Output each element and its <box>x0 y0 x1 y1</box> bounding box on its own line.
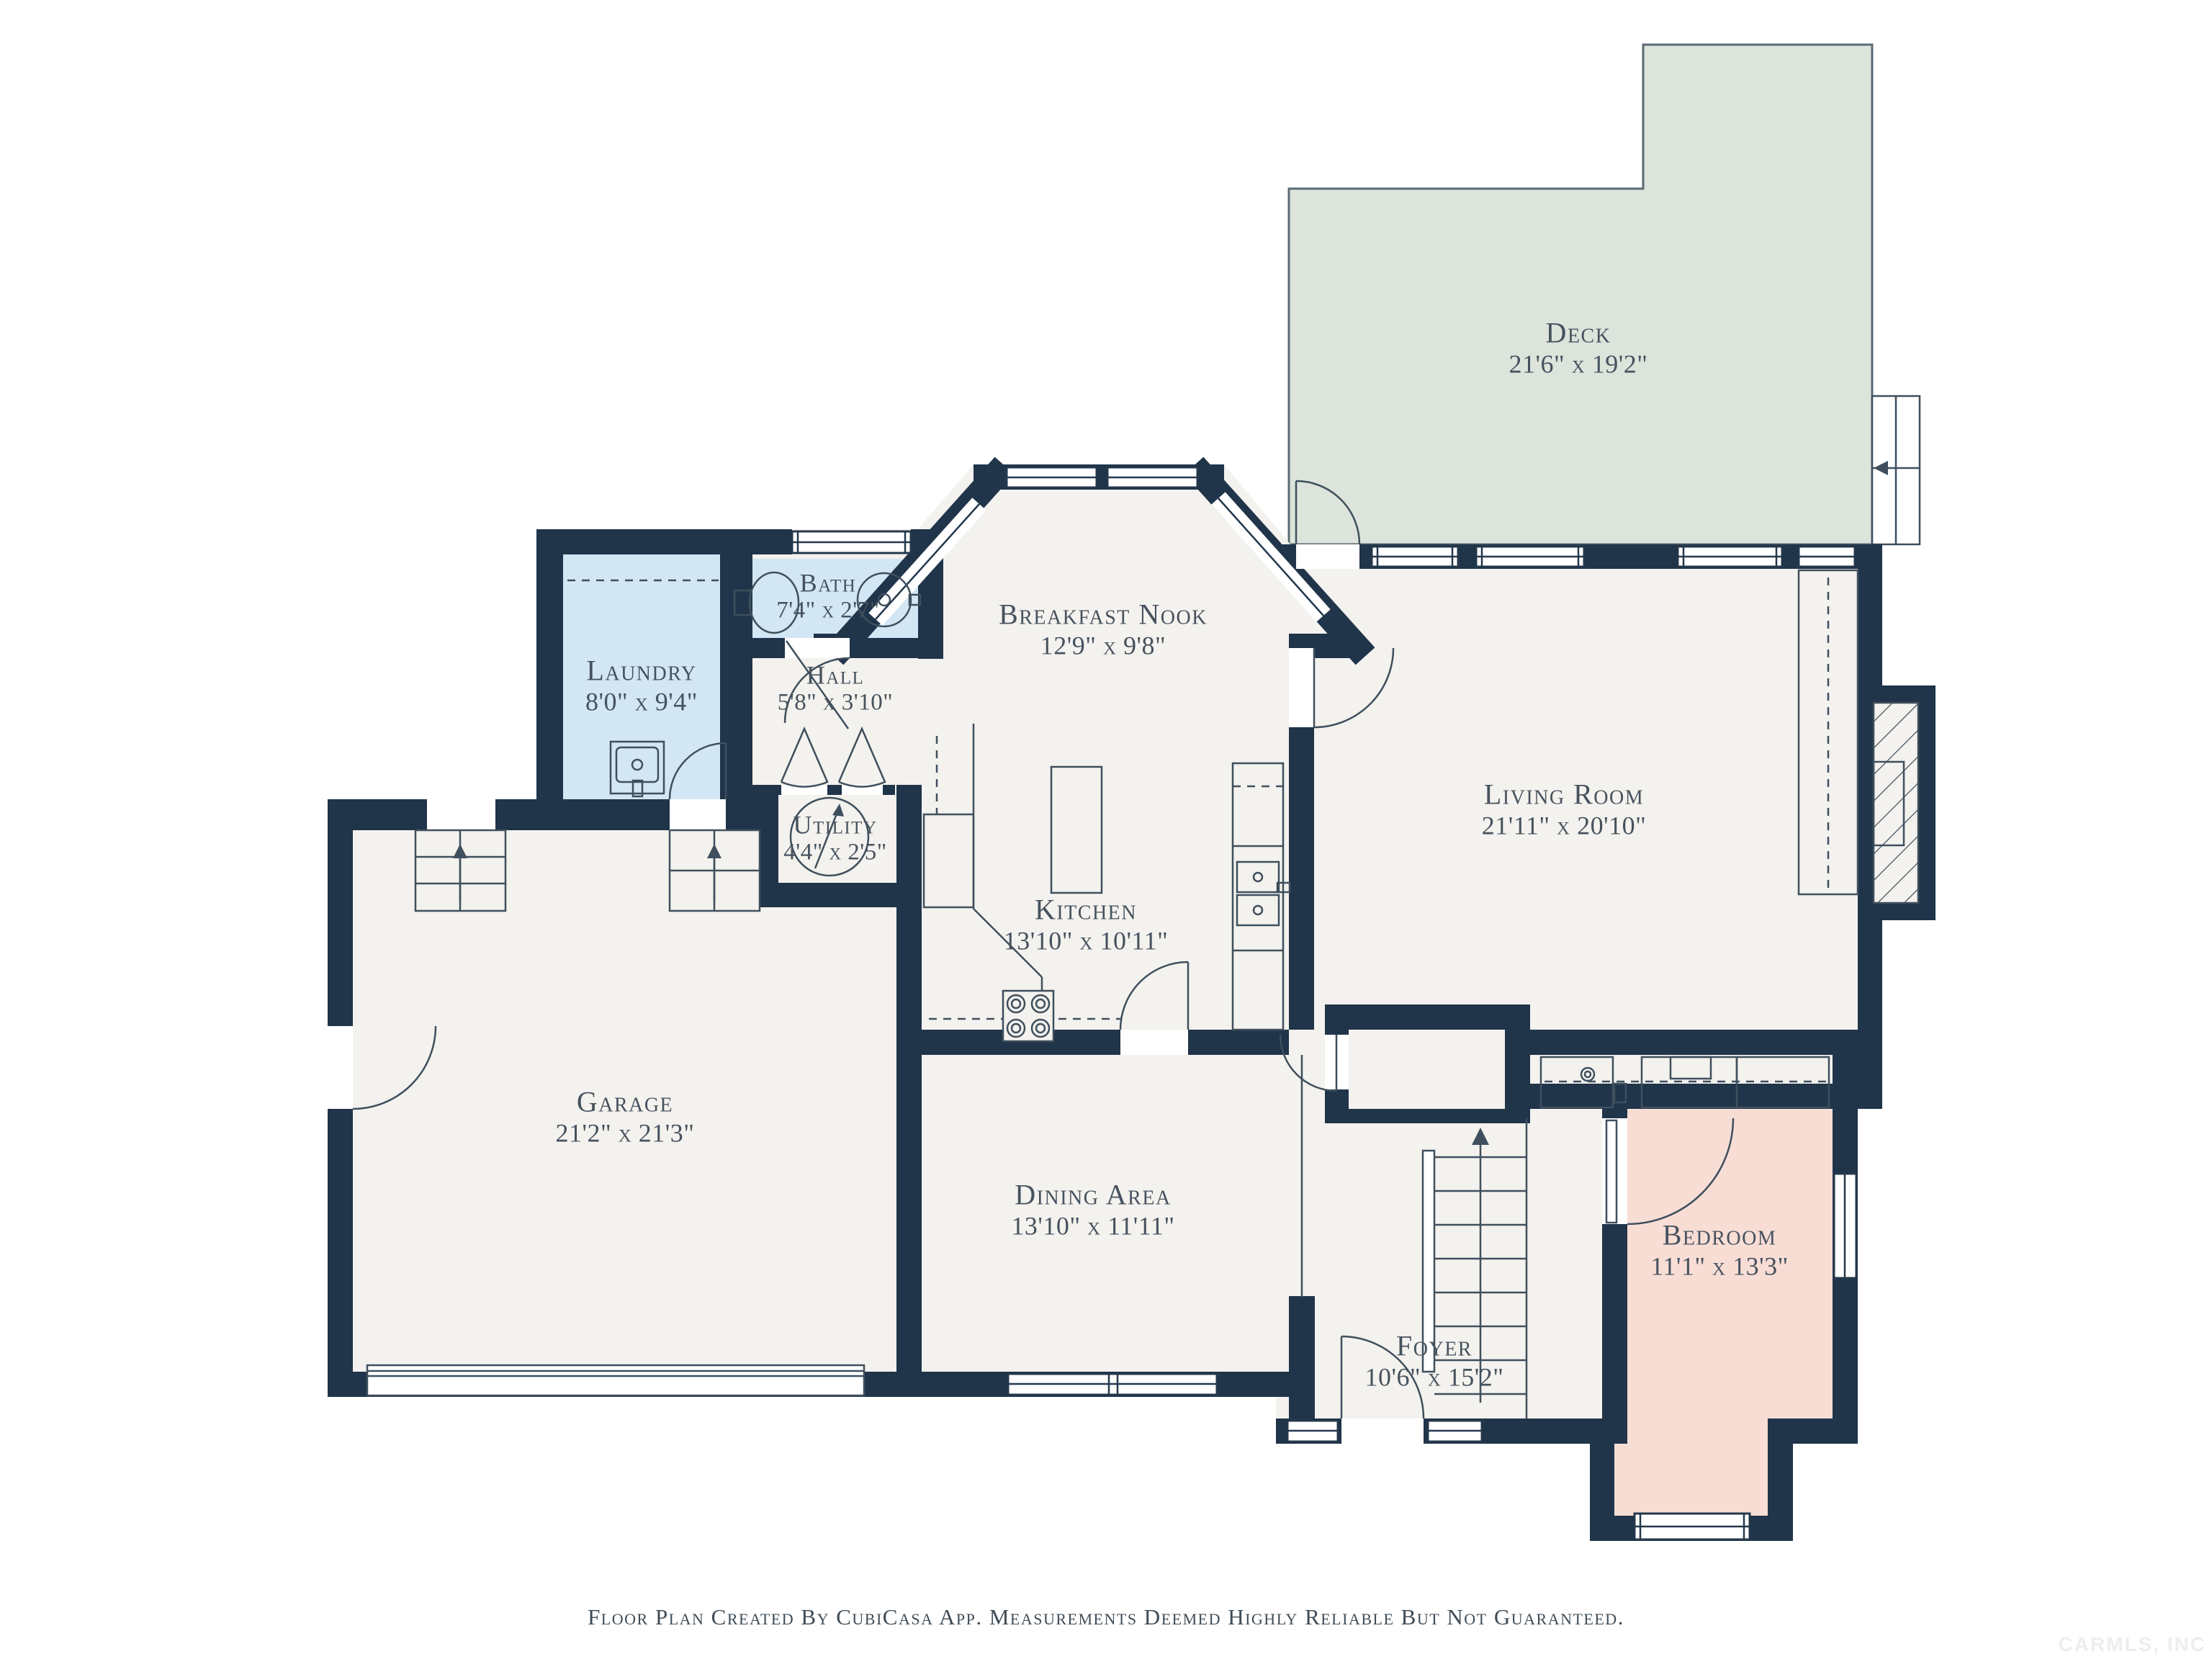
living-room-cabinet <box>1799 570 1858 894</box>
kitchen-fridge <box>924 814 974 907</box>
floor-plan-page: Deck 21'6" x 19'2" Bath 7'4" x 2'7" Brea… <box>0 0 2212 1659</box>
room-label-hall: Hall 5'8" x 3'10" <box>778 660 893 716</box>
room-label-bath: Bath 7'4" x 2'7" <box>776 568 879 624</box>
room-label-foyer: Foyer 10'6" x 15'2" <box>1365 1330 1504 1391</box>
room-label-deck: Deck 21'6" x 19'2" <box>1509 317 1648 378</box>
stove-icon <box>1003 991 1053 1041</box>
kitchen-island <box>1051 767 1102 893</box>
bath-window <box>792 531 911 553</box>
floor-plan-canvas <box>0 0 2212 1659</box>
bedroom-bay-floor <box>1614 1397 1768 1516</box>
garage-door <box>367 1365 864 1395</box>
room-label-living-room: Living Room 21'11" x 20'10" <box>1482 778 1647 840</box>
room-label-garage: Garage 21'2" x 21'3" <box>556 1086 695 1147</box>
fireplace-icon <box>1874 703 1918 903</box>
dining-windows <box>1008 1374 1217 1395</box>
deck-area <box>1289 45 1920 544</box>
bedroom-bay-window <box>1635 1514 1750 1539</box>
room-label-utility: Utility 4'4" x 2'5" <box>783 810 886 866</box>
mls-watermark: CARMLS, INC <box>2058 1633 2206 1656</box>
kitchen-counter-right <box>1233 763 1290 1030</box>
room-label-bedroom: Bedroom 11'1" x 13'3" <box>1650 1219 1789 1280</box>
room-label-dining-area: Dining Area 13'10" x 11'11" <box>1011 1179 1174 1240</box>
bedroom-side-window <box>1834 1174 1856 1278</box>
garage-steps-left <box>415 830 505 911</box>
garage-steps-right <box>670 830 760 911</box>
room-label-laundry: Laundry 8'0" x 9'4" <box>585 655 698 716</box>
disclaimer-text: Floor Plan Created By CubiCasa App. Meas… <box>588 1604 1624 1630</box>
room-label-kitchen: Kitchen 13'10" x 10'11" <box>1004 894 1169 955</box>
room-label-breakfast-nook: Breakfast Nook 12'9" x 9'8" <box>999 598 1208 660</box>
